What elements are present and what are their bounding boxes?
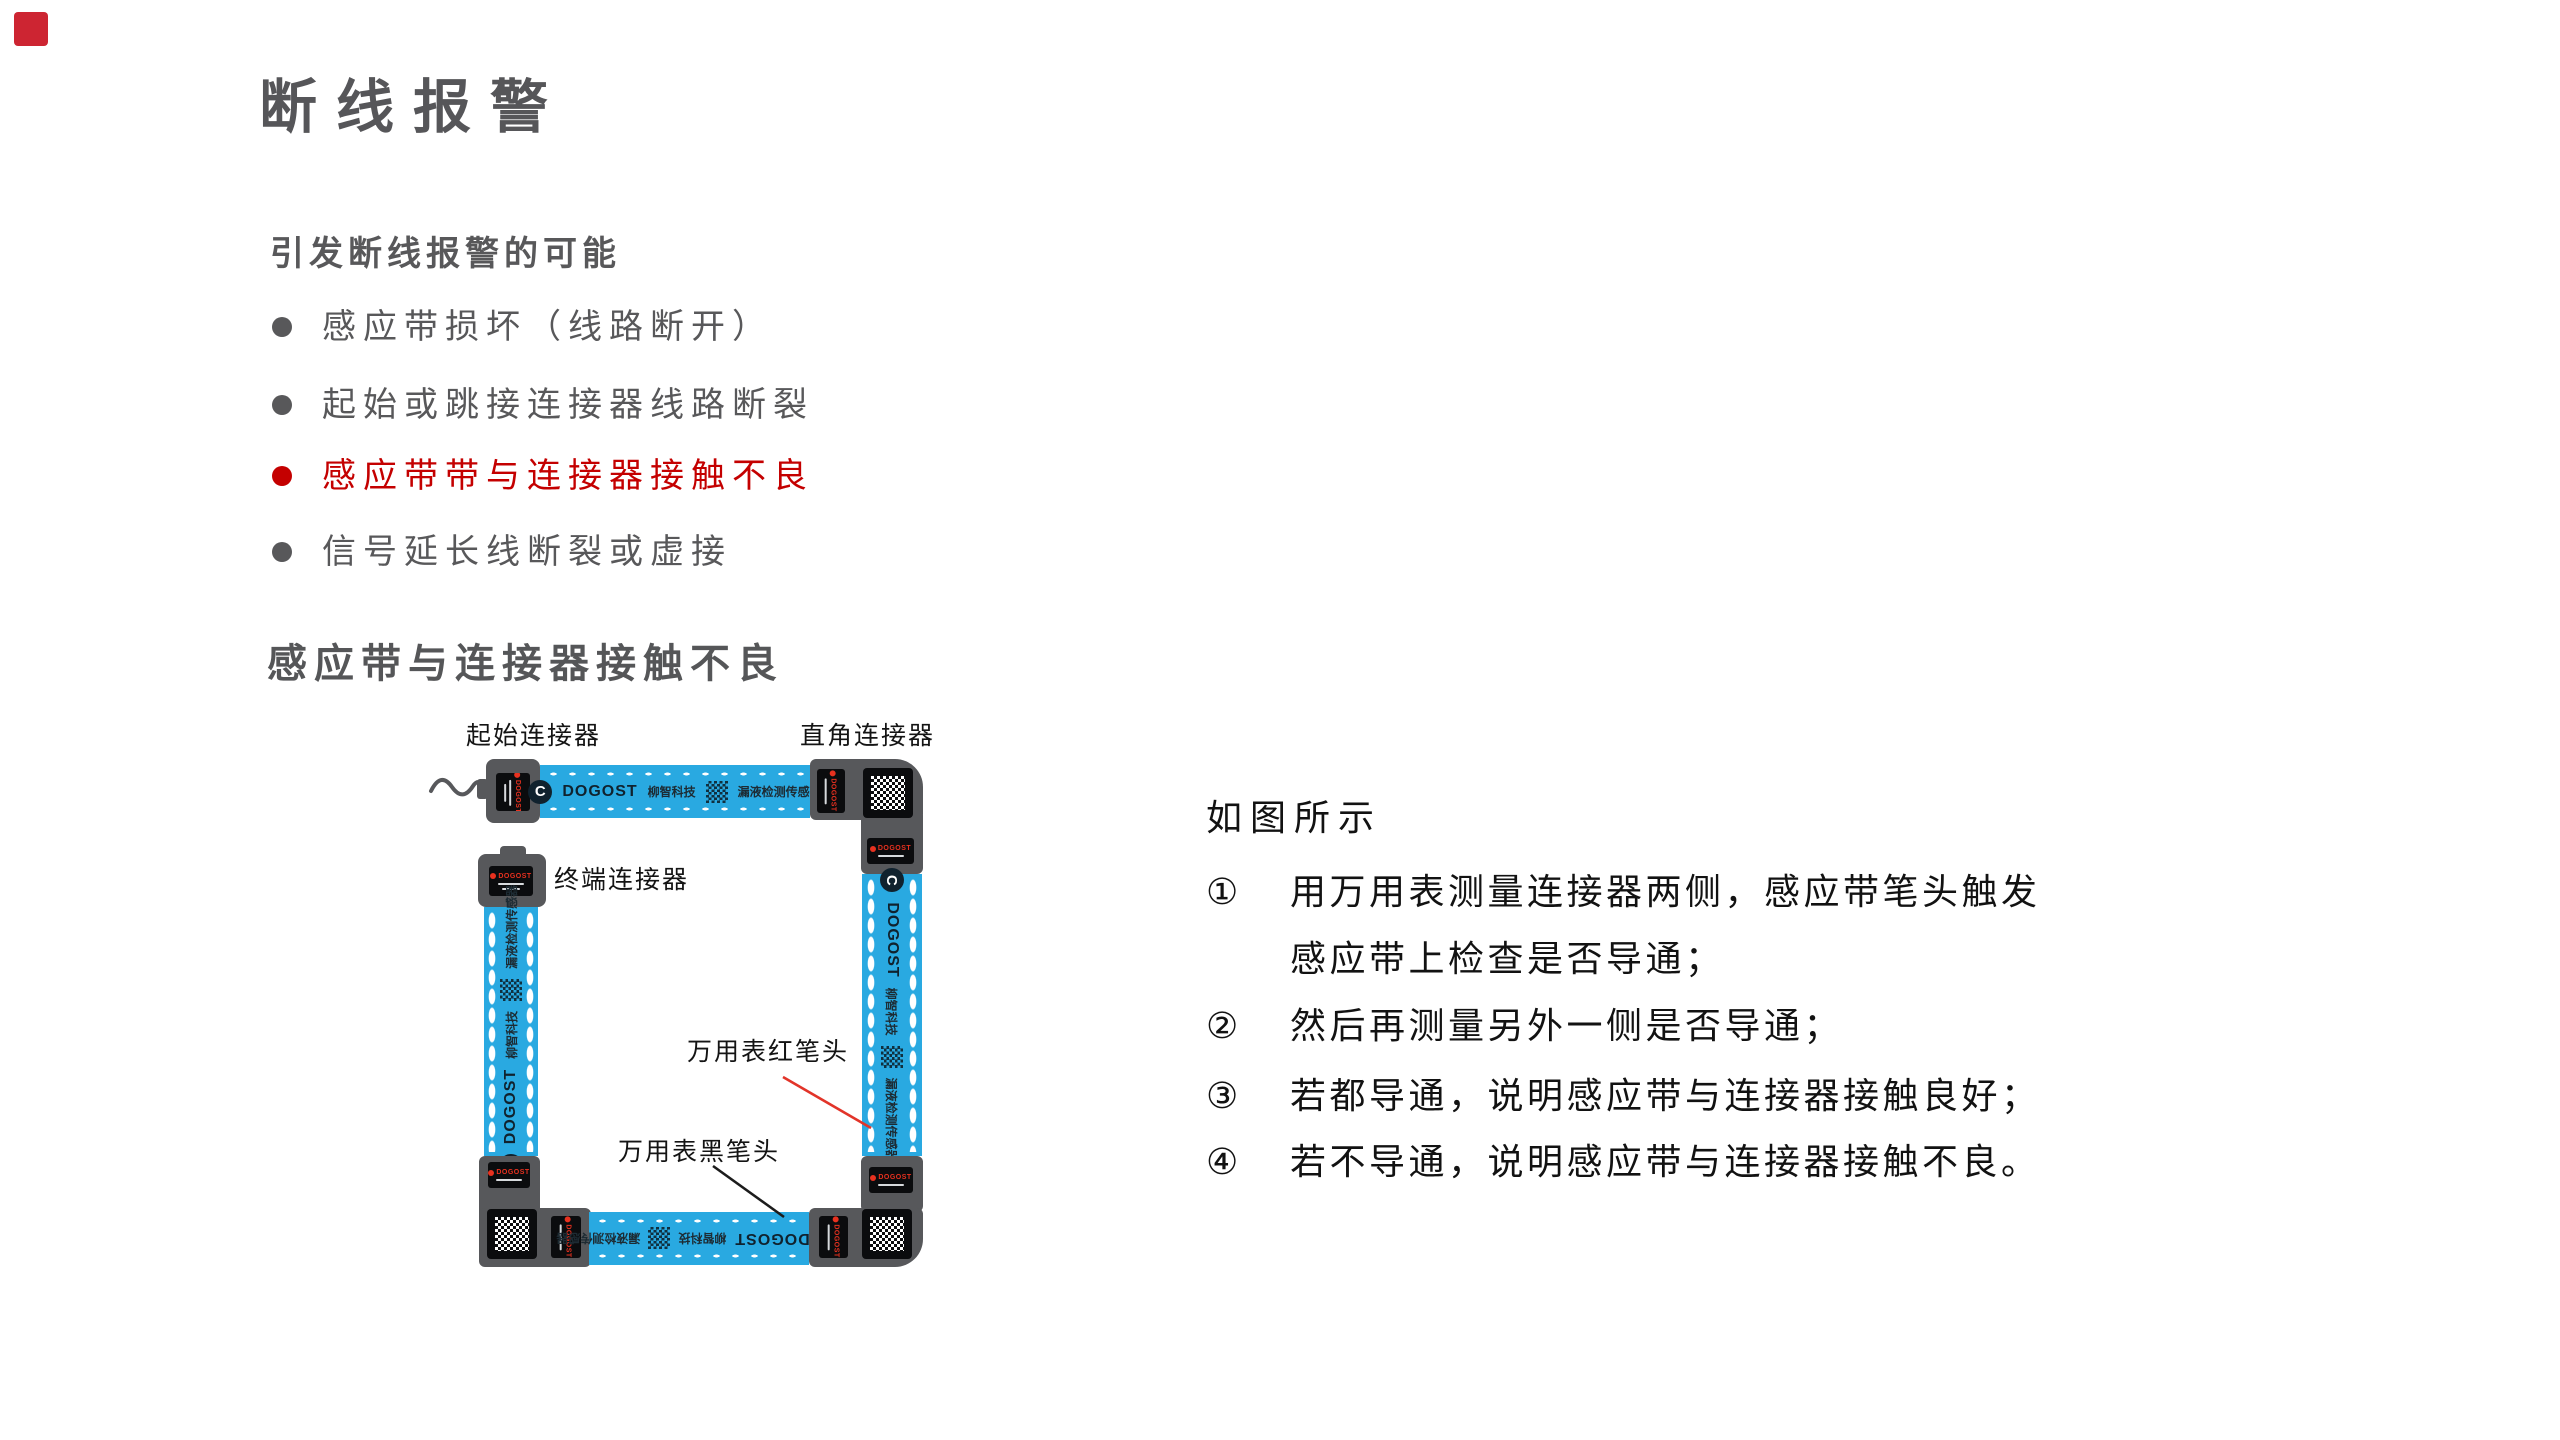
right-angle-connector-label: 直角连接器 [800, 724, 935, 749]
plate-brand-text: DOGOST [498, 873, 531, 880]
plate-content: DOGOST [825, 770, 837, 811]
step-number: ① [1206, 874, 1290, 910]
qr-code-icon [870, 1217, 904, 1251]
step-number: ③ [1206, 1078, 1290, 1114]
instruction-step: ② 然后再测量另外一侧是否导通； [1206, 1008, 1843, 1044]
plate-text-line [878, 855, 904, 857]
plate-brand-text: DOGOST [830, 778, 837, 811]
tape-company-text: 柳智科技 [503, 1011, 520, 1059]
tape-company-text: 柳智科技 [884, 988, 901, 1036]
plate-brand: DOGOST [833, 1216, 840, 1257]
plate-text-line [510, 779, 512, 805]
plate-brand-text: DOGOST [515, 779, 522, 811]
step-text: 若都导通，说明感应带与连接器接触良好； [1290, 1078, 2041, 1114]
cause-text: 信号延长线断裂或虚接 [322, 535, 732, 569]
plate-content: DOGOST [505, 773, 522, 811]
plate-brand-text: DOGOST [833, 1224, 840, 1257]
qr-code-icon [706, 781, 728, 803]
tape-brand-text: DOGOST [562, 783, 637, 801]
plate-text-line [828, 1224, 830, 1250]
plate-brand-text: DOGOST [496, 1169, 529, 1176]
tape-brand-text: DOGOST [883, 902, 901, 977]
multimeter-red-probe-label: 万用表红笔头 [687, 1040, 849, 1065]
qr-code-icon [495, 1217, 529, 1251]
sensing-tape-left: C DOGOST 柳智科技 漏液检测传感器 [484, 907, 538, 1156]
plate-text-line [496, 1179, 522, 1181]
plate-content: DOGOST [870, 845, 911, 857]
tape-print: C DOGOST 柳智科技 漏液检测传感器 [484, 907, 538, 1156]
connector-plate: DOGOST [488, 1162, 530, 1188]
brand-dot-icon [870, 846, 876, 852]
causes-heading: 引发断线报警的可能 [270, 237, 621, 271]
plate-content: DOGOST [870, 1174, 911, 1186]
cause-item: 感应带损坏（线路断开） [272, 310, 773, 344]
plate-brand: DOGOST [515, 773, 522, 811]
step-number: ② [1206, 1008, 1290, 1044]
tape-product-text: 漏液检测传感器 [503, 885, 520, 969]
brand-dot-icon [831, 770, 837, 776]
tape-print: C DOGOST 柳智科技 漏液检测传感器 [540, 765, 810, 818]
step-number: ④ [1206, 1144, 1290, 1180]
plate-text-line [505, 783, 507, 801]
connector-qr-plate [863, 768, 913, 818]
plate-brand: DOGOST [870, 1174, 911, 1181]
tape-company-text: 柳智科技 [648, 783, 696, 800]
connector-plate: DOGOST [817, 769, 845, 813]
qr-code-icon [500, 979, 522, 1001]
red-probe-leader-line [778, 1070, 878, 1134]
brand-dot-icon [490, 873, 496, 879]
step-text: 用万用表测量连接器两侧，感应带笔头触发 [1290, 874, 2041, 910]
plate-brand: DOGOST [488, 1169, 529, 1176]
terminal-connector-label: 终端连接器 [554, 868, 689, 893]
instruction-step: ① 用万用表测量连接器两侧，感应带笔头触发 [1206, 874, 2041, 910]
bullet-dot [272, 395, 292, 415]
qr-code-icon [871, 776, 905, 810]
dogost-logo-icon: C [528, 780, 552, 804]
cause-text: 感应带损坏（线路断开） [322, 310, 773, 344]
brand-dot-icon [870, 1175, 876, 1181]
cause-item-highlighted: 感应带带与连接器接触不良 [272, 459, 814, 493]
brand-dot-icon [488, 1170, 494, 1176]
instruction-step: ④ 若不导通，说明感应带与连接器接触不良。 [1206, 1144, 2041, 1180]
instructions-intro: 如图所示 [1206, 800, 1382, 836]
tape-print-rotated: C DOGOST 柳智科技 漏液检测传感器 [484, 907, 538, 1156]
start-connector-label: 起始连接器 [466, 724, 601, 749]
plate-brand: DOGOST [490, 873, 531, 880]
bullet-dot [272, 317, 292, 337]
connector-qr-plate [487, 1209, 537, 1259]
dogost-logo-icon: C [880, 868, 904, 892]
section-heading: 感应带与连接器接触不良 [267, 644, 784, 684]
qr-code-icon [648, 1228, 670, 1250]
step-text-continued: 感应带上检查是否导通； [1290, 941, 1725, 977]
instruction-step: ③ 若都导通，说明感应带与连接器接触良好； [1206, 1078, 2041, 1114]
plate-brand-text: DOGOST [878, 845, 911, 852]
brand-dot-icon [515, 773, 521, 777]
connector-plate: DOGOST [869, 1167, 913, 1193]
black-probe-leader-line [708, 1160, 792, 1224]
cause-item: 信号延长线断裂或虚接 [272, 535, 732, 569]
step-text: 若不导通，说明感应带与连接器接触不良。 [1290, 1144, 2041, 1180]
cause-item: 起始或跳接连接器线路断裂 [272, 388, 814, 422]
tape-product-text: 漏液检测传感器 [556, 1230, 640, 1247]
connector-plate: DOGOST [867, 838, 914, 864]
plate-content: DOGOST [488, 1169, 529, 1181]
qr-code-icon [881, 1046, 903, 1068]
tape-brand-text: DOGOST [502, 1069, 520, 1144]
tape-company-text: 柳智科技 [678, 1230, 726, 1247]
connector-qr-plate [862, 1209, 912, 1259]
brand-dot-icon [566, 1216, 572, 1222]
bullet-dot [272, 542, 292, 562]
plate-text-line [825, 778, 827, 804]
plate-content: DOGOST [828, 1216, 840, 1257]
connector-plate: DOGOST [819, 1216, 848, 1258]
start-connector-wire [428, 774, 484, 802]
brand-dot-icon [833, 1216, 839, 1222]
manual-page: 断线报警 引发断线报警的可能 感应带损坏（线路断开） 起始或跳接连接器线路断裂 … [0, 0, 2560, 1440]
page-title: 断线报警 [259, 76, 567, 140]
cause-text: 起始或跳接连接器线路断裂 [322, 388, 814, 422]
plate-brand: DOGOST [830, 770, 837, 811]
tape-brand-text: DOGOST [734, 1230, 809, 1248]
tape-product-text: 漏液检测传感器 [884, 1078, 901, 1162]
brand-logo-square [14, 12, 48, 46]
sensing-tape-top: C DOGOST 柳智科技 漏液检测传感器 [540, 765, 810, 818]
start-connector-plate: DOGOST [496, 773, 530, 811]
step-text: 然后再测量另外一侧是否导通； [1290, 1008, 1843, 1044]
plate-brand-text: DOGOST [878, 1174, 911, 1181]
plate-brand: DOGOST [870, 845, 911, 852]
plate-text-line [878, 1184, 904, 1186]
cause-text-red: 感应带带与连接器接触不良 [322, 459, 814, 493]
bullet-dot-red [272, 466, 292, 486]
